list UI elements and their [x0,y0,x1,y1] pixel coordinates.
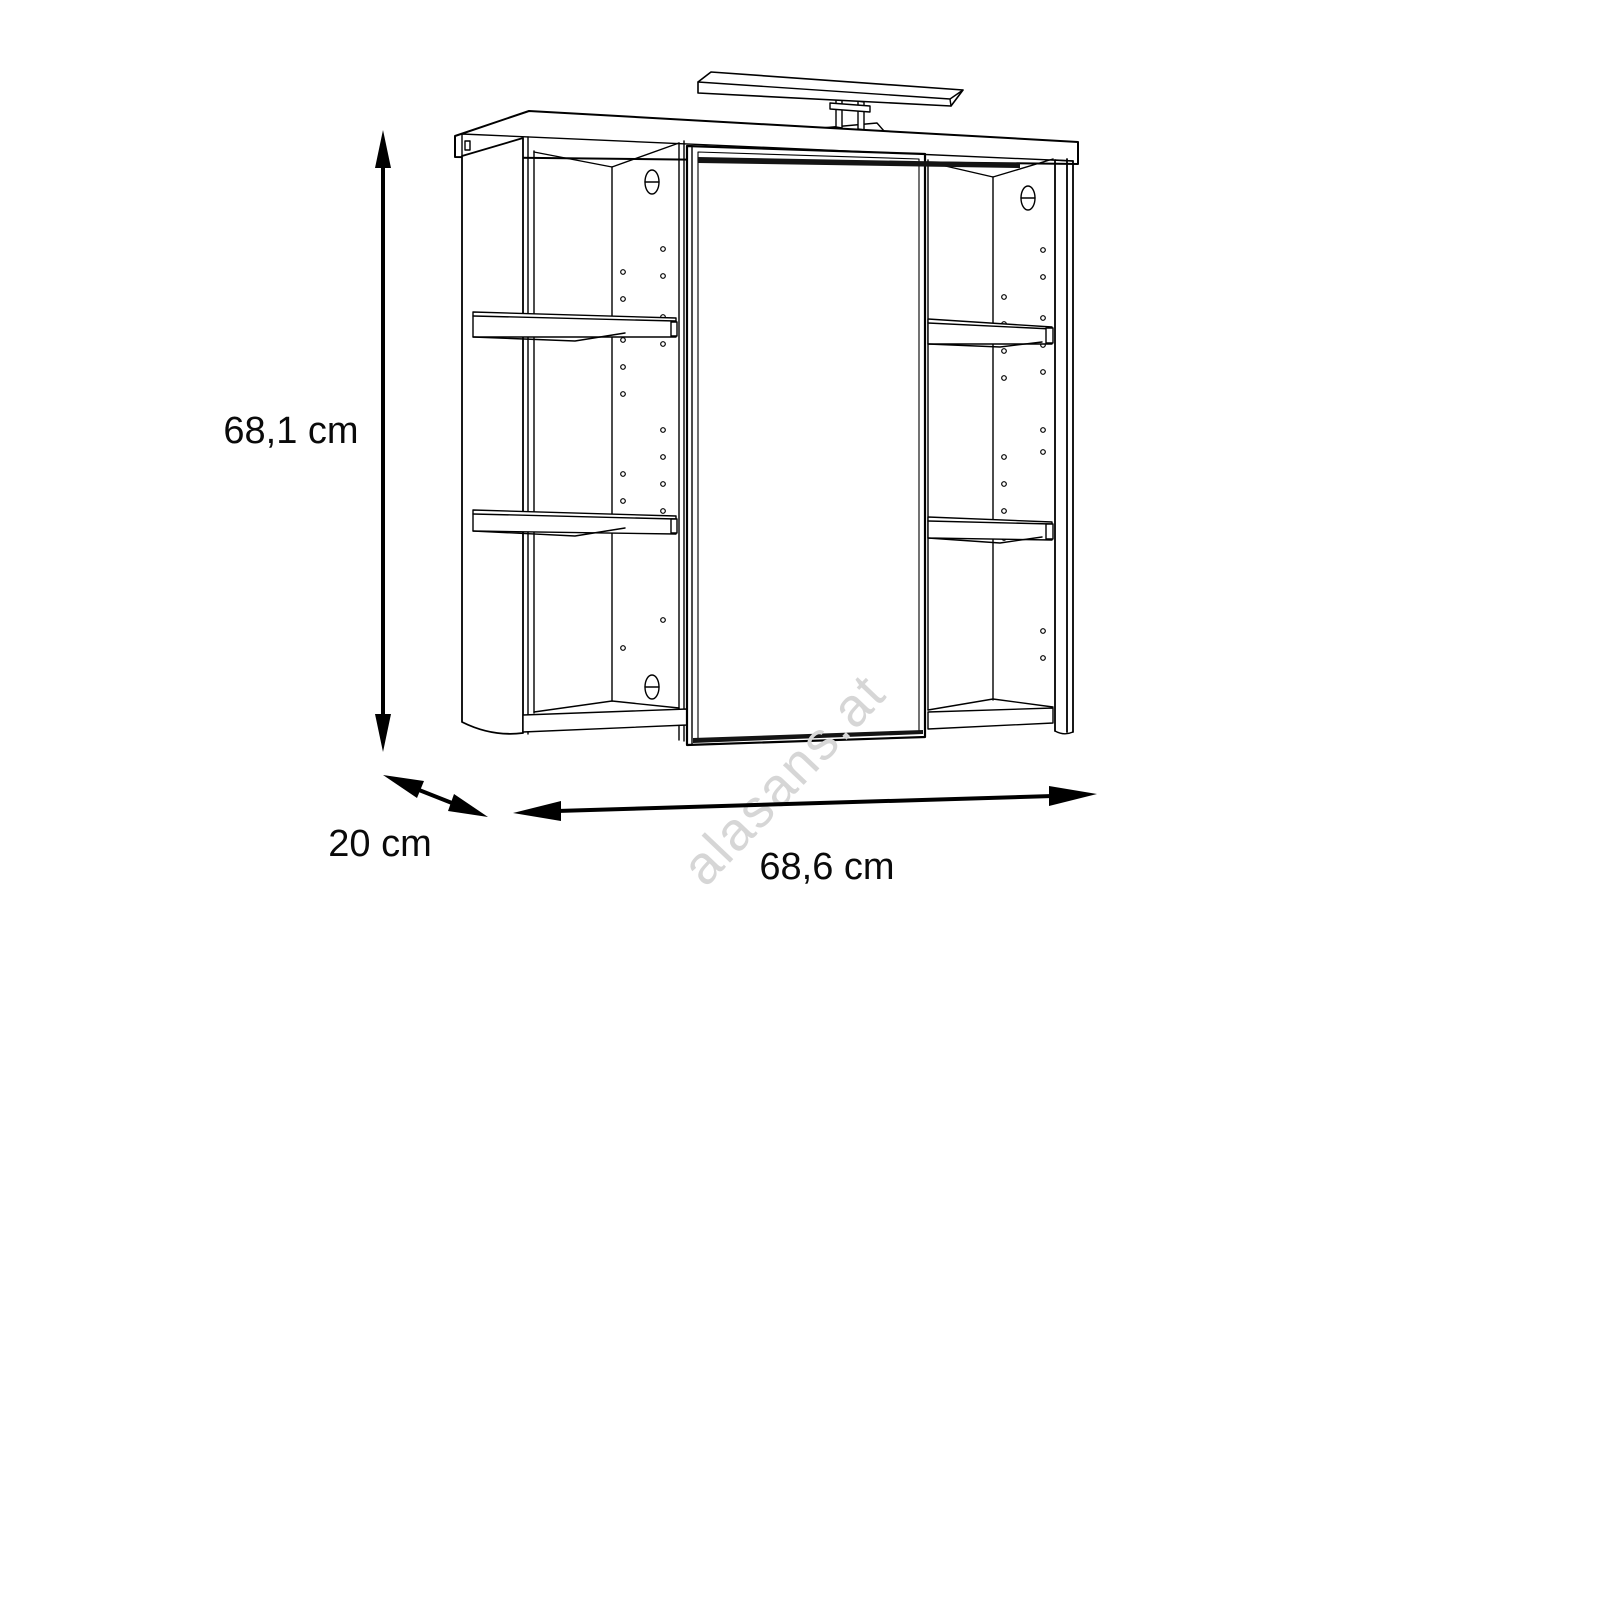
depth-dimension-arrow-icon [383,775,488,817]
mirror-door [687,146,925,745]
keyhole-mount-icon [1021,186,1035,210]
mirror-cabinet-diagram: alasans.at 68,1 cm 20 cm 68,6 cm [0,0,1600,1600]
right-side-panel [1055,159,1073,734]
left-side-panel [462,137,534,734]
right-compartment [928,159,1053,729]
dimension-annotations: 68,1 cm 20 cm 68,6 cm [223,130,1097,888]
shelf [473,510,677,536]
shelf [473,312,677,341]
height-dimension-label: 68,1 cm [223,410,358,452]
height-dimension-arrow-icon [375,130,391,752]
shelf [928,319,1053,347]
depth-dimension-label: 20 cm [328,823,431,865]
cabinet-drawing [455,72,1078,745]
shelf-pin-holes [621,247,666,651]
width-dimension-label: 68,6 cm [759,846,894,888]
shelf [928,517,1053,543]
technical-drawing-page: alasans.at 68,1 cm 20 cm 68,6 cm [0,0,1600,1600]
keyhole-mount-icon [645,170,659,699]
shelf-pin-holes [1002,248,1046,661]
